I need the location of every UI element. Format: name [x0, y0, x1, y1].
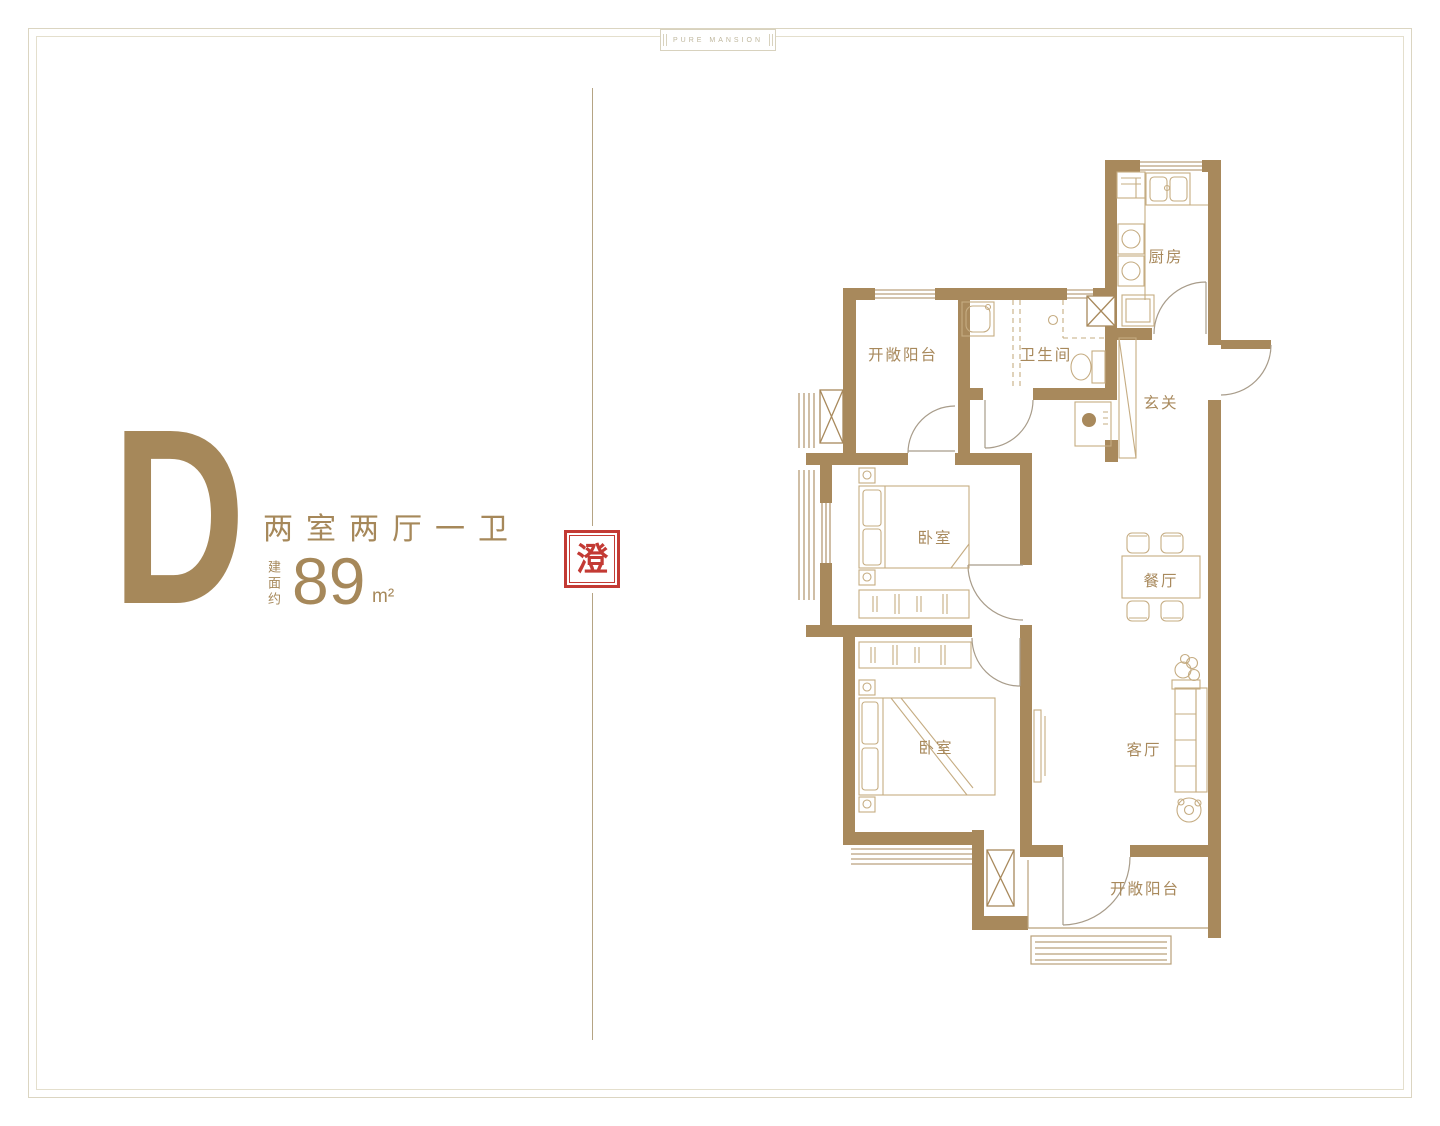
room-label-balcony-bottom: 开敞阳台: [1110, 880, 1180, 898]
balcony-top-door-arc: [908, 406, 955, 453]
nightstand-icon: [859, 468, 875, 483]
foyer-cabinet-icon: [1122, 295, 1154, 326]
wardrobe-icon: [859, 642, 971, 668]
kitchen-stove-icon: [1118, 224, 1144, 286]
red-seal-stamp: 澄: [564, 530, 620, 588]
room-label-kitchen: 厨房: [1148, 248, 1183, 266]
tv-icon: [1034, 710, 1045, 782]
vertical-divider-top: [592, 88, 593, 526]
sofa-icon: [1172, 680, 1207, 792]
vanity-basin-icon: [1075, 402, 1111, 446]
plant-icon: [1175, 655, 1200, 681]
wardrobe-icon: [859, 590, 969, 618]
room-label-foyer: 玄关: [1143, 394, 1178, 412]
room-label-balcony-top: 开敞阳台: [868, 346, 938, 364]
floorplan-drawing: 厨房 开敞阳台 卫生间 玄关 卧室 餐厅 卧室 客厅 开敞阳台: [795, 148, 1275, 993]
bedroom1-door-arc: [968, 565, 1023, 620]
floorplan-sheet: PURE MANSION D 两室两厅一卫 建面约 89 m² 澄: [0, 0, 1440, 1126]
unit-layout-text: 两室两厅一卫: [263, 504, 521, 548]
room-label-bathroom: 卫生间: [1020, 346, 1073, 364]
dining-chair-icon: [1127, 601, 1149, 621]
area-prefix-text: 建面约: [264, 560, 283, 608]
shower-head-icon: [1049, 316, 1058, 325]
kitchen-counter-line: [1145, 172, 1208, 300]
living-furniture: [1034, 655, 1207, 823]
room-label-bedroom-2: 卧室: [918, 739, 953, 757]
unit-letter: D: [112, 392, 246, 642]
foyer-fixtures: [1119, 295, 1154, 458]
bathroom-door-arc: [985, 400, 1033, 448]
area-value: 89: [292, 548, 365, 614]
brand-badge: PURE MANSION: [660, 29, 776, 51]
badge-tick-icon: [769, 34, 773, 46]
balcony-bottom-outline: [1028, 860, 1208, 964]
room-label-living: 客厅: [1126, 741, 1161, 759]
kitchen-fixtures: [1117, 172, 1208, 300]
kitchen-sink-icon: [1146, 173, 1190, 205]
walls: [806, 160, 1271, 938]
room-label-dining: 餐厅: [1143, 572, 1178, 590]
dining-chair-icon: [1161, 601, 1183, 621]
bedroom2-door-arc: [972, 638, 1020, 686]
brand-badge-text: PURE MANSION: [667, 37, 769, 44]
toilet-icon: [1071, 351, 1105, 383]
dining-chair-icon: [1127, 533, 1149, 553]
nightstand-icon: [859, 570, 875, 585]
nightstand-icon: [859, 797, 875, 812]
kitchen-cabinet-icon: [1117, 172, 1145, 198]
vertical-divider-bottom: [592, 593, 593, 1040]
area-unit: m²: [372, 586, 394, 608]
flue-box-icon: [1087, 296, 1115, 326]
room-label-bedroom-1: 卧室: [917, 529, 952, 547]
dining-chair-icon: [1161, 533, 1183, 553]
ac-box-icon: [987, 850, 1014, 906]
entry-door-arc: [1221, 345, 1271, 395]
nightstand-icon: [859, 680, 875, 695]
bedroom2-furniture: [859, 642, 995, 812]
seal-inner-border: [569, 535, 615, 583]
side-table-icon: [1177, 798, 1201, 822]
ac-box-icon: [820, 390, 843, 443]
bed-icon: [859, 486, 969, 568]
wet-dry-divider: [1013, 300, 1020, 388]
kitchen-door-arc: [1154, 282, 1206, 334]
